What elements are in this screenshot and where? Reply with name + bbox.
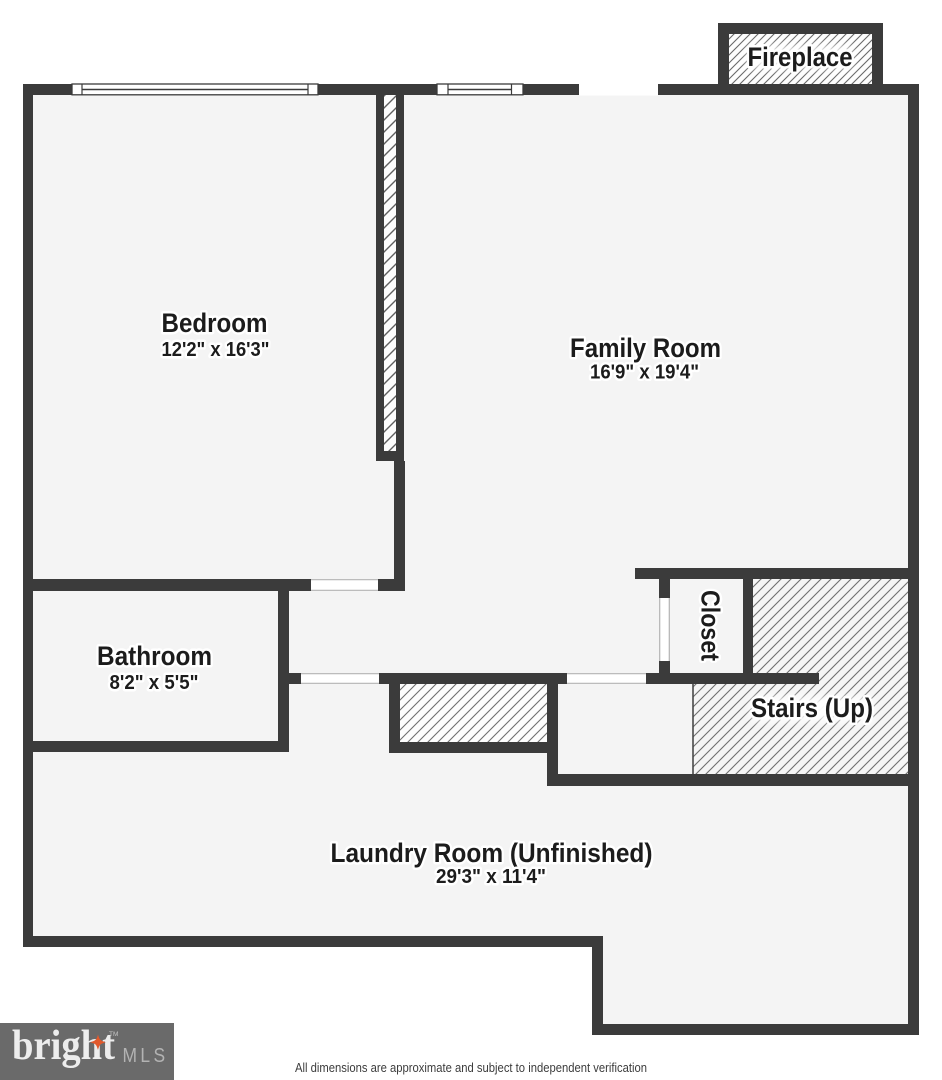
svg-text:MLS: MLS: [123, 1044, 169, 1067]
svg-text:12'2" x 16'3": 12'2" x 16'3": [162, 339, 270, 361]
svg-text:bright: bright: [12, 1023, 115, 1069]
svg-text:TM: TM: [109, 1031, 118, 1038]
svg-text:Stairs (Up): Stairs (Up): [751, 693, 873, 723]
svg-text:Closet: Closet: [696, 590, 726, 661]
svg-text:Bedroom: Bedroom: [162, 308, 268, 338]
svg-text:Bathroom: Bathroom: [97, 641, 212, 671]
svg-text:29'3" x 11'4": 29'3" x 11'4": [436, 866, 546, 888]
svg-text:16'9" x 19'4": 16'9" x 19'4": [590, 362, 699, 384]
svg-text:8'2" x 5'5": 8'2" x 5'5": [110, 672, 199, 694]
svg-text:Laundry Room (Unfinished): Laundry Room (Unfinished): [331, 838, 653, 868]
svg-text:All dimensions are approximate: All dimensions are approximate and subje…: [295, 1060, 647, 1075]
svg-text:Family Room: Family Room: [570, 333, 721, 363]
svg-text:Fireplace: Fireplace: [748, 42, 853, 72]
